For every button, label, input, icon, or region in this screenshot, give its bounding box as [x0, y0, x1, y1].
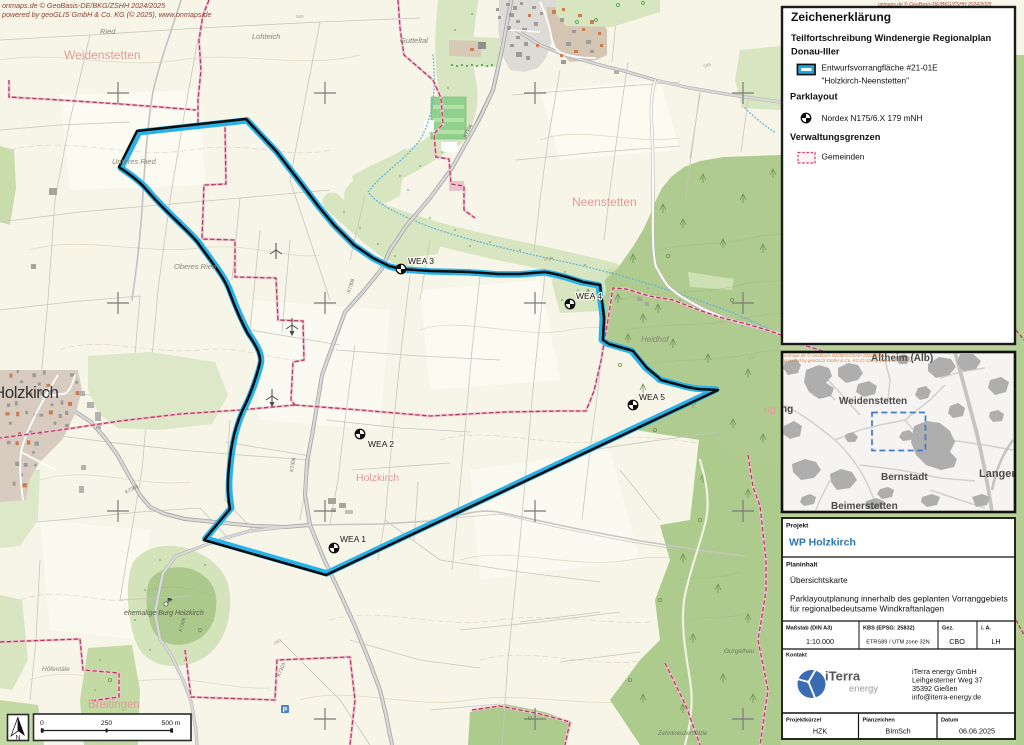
svg-text:Projekt: Projekt	[786, 523, 809, 530]
svg-text:Gutteltal: Gutteltal	[400, 36, 428, 45]
svg-text:ng: ng	[764, 404, 776, 416]
svg-text:Verwaltungsgrenzen: Verwaltungsgrenzen	[790, 132, 881, 142]
svg-text:Gurgelhau: Gurgelhau	[724, 648, 755, 655]
svg-text:Datum: Datum	[941, 718, 958, 724]
svg-text:CBO: CBO	[949, 637, 965, 646]
svg-text:P: P	[283, 707, 288, 714]
svg-text:Beimerstetten: Beimerstetten	[831, 501, 898, 512]
svg-text:Bernstadt: Bernstadt	[881, 472, 928, 483]
svg-text:Weidenstetten: Weidenstetten	[839, 396, 907, 407]
svg-text:Projektkürzel: Projektkürzel	[786, 718, 822, 724]
svg-text:Holzkirch: Holzkirch	[356, 472, 399, 484]
svg-text:powered by geoGLIS GmbH & Co.: powered by geoGLIS GmbH & Co. KG (© 2025…	[1, 10, 211, 19]
svg-text:Unteres Ried: Unteres Ried	[112, 157, 157, 166]
svg-text:Parklayout: Parklayout	[790, 92, 838, 102]
svg-text:energy: energy	[849, 684, 878, 695]
svg-text:Zeichenerklärung: Zeichenerklärung	[791, 10, 891, 24]
svg-text:Übersichtskarte: Übersichtskarte	[790, 575, 848, 585]
svg-text:WEA 3: WEA 3	[408, 256, 434, 266]
svg-text:onmaps.de © GeoBasis-DE/BKG/ZS: onmaps.de © GeoBasis-DE/BKG/ZSHH 2024/20…	[2, 1, 166, 10]
svg-text:Planinhalt: Planinhalt	[786, 562, 818, 569]
svg-text:06.06.2025: 06.06.2025	[959, 727, 995, 736]
svg-text:"Holzkirch-Neenstetten": "Holzkirch-Neenstetten"	[822, 76, 910, 86]
svg-text:iTerra: iTerra	[825, 669, 861, 684]
svg-text:WEA 4: WEA 4	[576, 291, 602, 301]
svg-text:Teilfortschreibung Windenergie: Teilfortschreibung Windenergie Regionalp…	[791, 33, 991, 43]
svg-text:BImSch: BImSch	[885, 727, 910, 736]
svg-text:Donau-Iller: Donau-Iller	[791, 47, 840, 57]
svg-text:LH: LH	[991, 637, 1000, 646]
svg-text:Nordex N175/6.X 179 mNH: Nordex N175/6.X 179 mNH	[822, 113, 923, 123]
svg-text:Breitingen: Breitingen	[88, 699, 140, 711]
svg-text:für regionalbedeutsame Windkra: für regionalbedeutsame Windkraftanlagen	[790, 604, 944, 614]
svg-text:WEA 5: WEA 5	[639, 392, 665, 402]
svg-text:Ried: Ried	[100, 27, 116, 36]
svg-text:Parklayoutplanung innerhalb de: Parklayoutplanung innerhalb des geplante…	[790, 594, 1008, 604]
svg-text:0: 0	[40, 720, 44, 727]
svg-text:Heidhof: Heidhof	[641, 335, 669, 344]
svg-text:250: 250	[101, 720, 113, 727]
svg-text:WEA 2: WEA 2	[368, 439, 394, 449]
svg-text:Kontakt: Kontakt	[786, 653, 807, 659]
svg-text:Lohteich: Lohteich	[252, 32, 280, 41]
svg-text:1:10.000: 1:10.000	[806, 637, 834, 646]
svg-text:Zehnkreuzerhölzle: Zehnkreuzerhölzle	[657, 731, 708, 737]
svg-text:Planzeichen: Planzeichen	[863, 718, 896, 724]
svg-text:Maßstab (DIN A3): Maßstab (DIN A3)	[786, 626, 832, 632]
svg-text:Höfentäle: Höfentäle	[42, 666, 70, 673]
svg-text:WEA 1: WEA 1	[340, 534, 366, 544]
svg-text:WP Holzkirch: WP Holzkirch	[789, 537, 856, 549]
svg-text:Gez.: Gez.	[942, 626, 954, 632]
svg-text:Neenstetten: Neenstetten	[572, 195, 637, 209]
svg-text:Weidenstetten: Weidenstetten	[64, 48, 141, 62]
svg-text:500 m: 500 m	[162, 720, 181, 727]
svg-text:N: N	[16, 735, 21, 742]
svg-text:Gemeinden: Gemeinden	[822, 152, 865, 162]
svg-text:Entwurfsvorrangfläche #21-01E: Entwurfsvorrangfläche #21-01E	[822, 63, 939, 73]
svg-text:580: 580	[296, 14, 304, 19]
svg-text:KBS (EPSG: 25832): KBS (EPSG: 25832)	[863, 626, 915, 632]
svg-text:HZK: HZK	[813, 727, 828, 736]
svg-text:powered by geoGLIS GmbH & Co.: powered by geoGLIS GmbH & Co. KG (© 2025…	[783, 358, 912, 363]
svg-text:Holzkirch: Holzkirch	[0, 383, 58, 402]
svg-text:ehemalige Burg Holzkirch: ehemalige Burg Holzkirch	[124, 610, 204, 617]
svg-text:Oberes Ried: Oberes Ried	[174, 262, 217, 271]
svg-text:info@iterra-energy.de: info@iterra-energy.de	[912, 693, 981, 702]
svg-text:i. A.: i. A.	[981, 626, 991, 632]
svg-text:ETRS89 / UTM zone 32N: ETRS89 / UTM zone 32N	[866, 640, 929, 646]
